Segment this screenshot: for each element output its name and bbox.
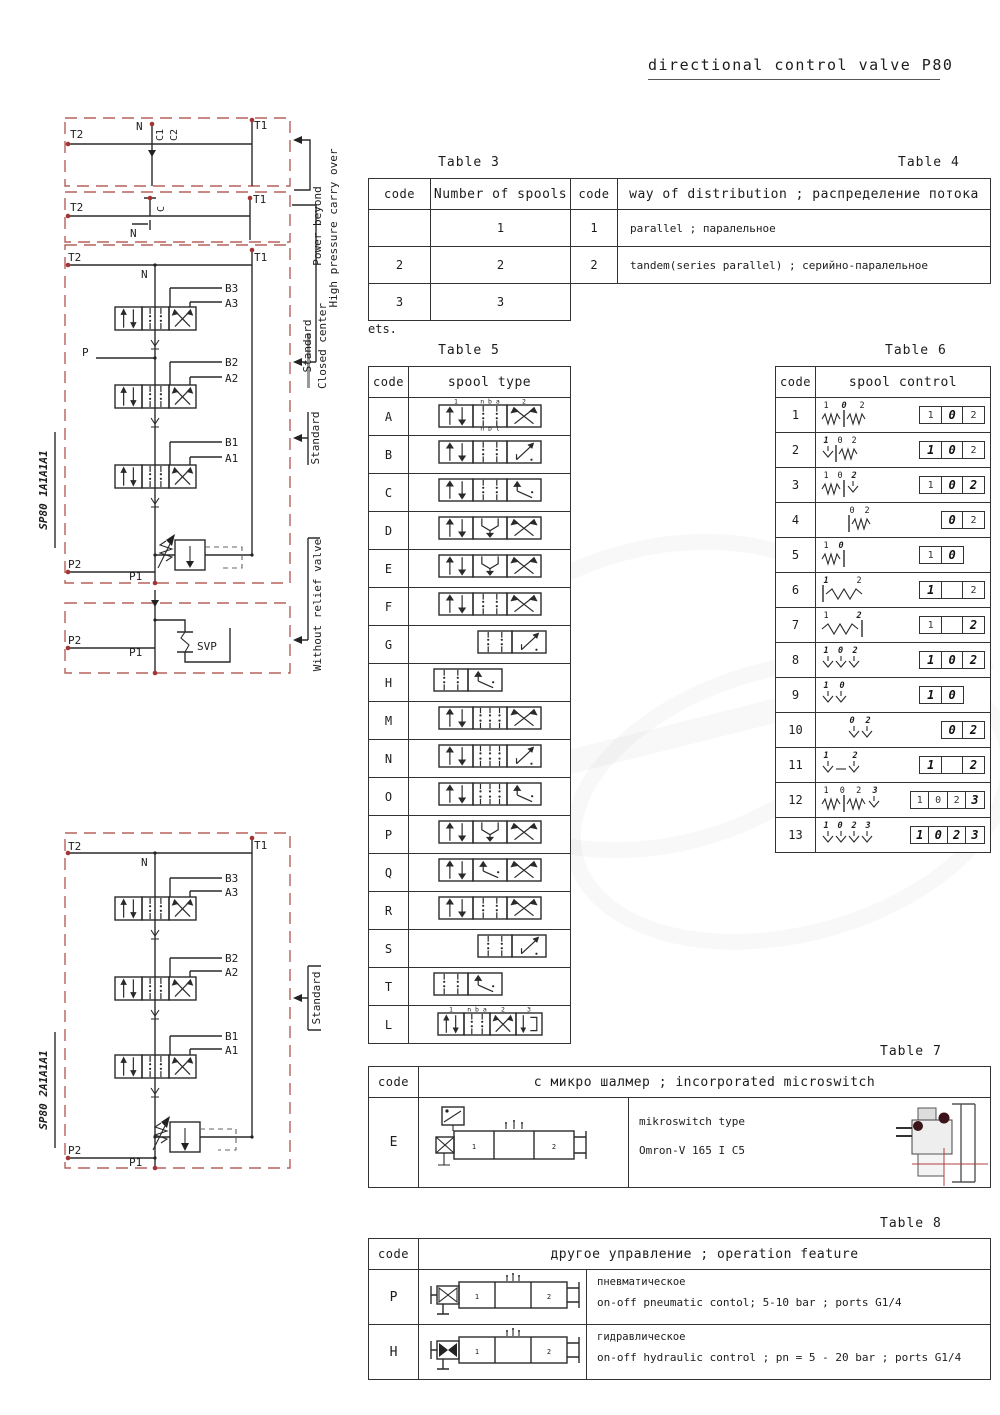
- svg-text:1: 1: [449, 1006, 453, 1014]
- position-boxes: 12: [921, 756, 985, 774]
- spool-type-row: T: [369, 968, 571, 1006]
- port-label: T2: [70, 201, 83, 214]
- spool-type-row: H: [369, 664, 571, 702]
- svg-text:Power beyond: Power beyond: [311, 186, 324, 265]
- code-cell: H: [369, 1325, 419, 1380]
- position-boxes: 10: [921, 686, 985, 704]
- description-cell: tandem(series parallel) ; серийно-парале…: [618, 247, 991, 284]
- svg-text:3: 3: [864, 821, 870, 831]
- control-symbol: 1212: [816, 573, 991, 608]
- table-row: 2 2: [369, 247, 571, 284]
- port-label: P: [82, 346, 89, 359]
- port-label: C: [156, 206, 167, 212]
- spool-code: A: [369, 398, 409, 436]
- svg-text:0: 0: [838, 541, 843, 551]
- table-row: H 1 2: [369, 1325, 991, 1380]
- spool-code: D: [369, 512, 409, 550]
- microswitch-type-label: mikroswitch type: [639, 1108, 848, 1137]
- control-code: 11: [776, 748, 816, 783]
- code-cell: 1: [571, 210, 618, 247]
- table6-header-code: code: [776, 367, 816, 398]
- table8-header-code: code: [369, 1239, 419, 1270]
- position-boxes: 102: [921, 441, 985, 459]
- spool-code: R: [369, 892, 409, 930]
- spool-control-row: 91010: [776, 678, 991, 713]
- svg-text:3: 3: [527, 1006, 531, 1014]
- svg-text:2: 2: [546, 1348, 550, 1356]
- spool-type-row: Q: [369, 854, 571, 892]
- port-label: A1: [225, 452, 238, 465]
- spool-code: H: [369, 664, 409, 702]
- port-label: P1: [129, 646, 142, 659]
- spool-type-row: F: [369, 588, 571, 626]
- spool-control-row: 40202: [776, 503, 991, 538]
- control-symbol: 0202: [816, 713, 991, 748]
- code-cell: 2: [369, 247, 431, 284]
- port-label: T1: [254, 839, 267, 852]
- port-label: T1: [253, 193, 266, 206]
- operation-en: on-off pneumatic contol; 5-10 bar ; port…: [597, 1293, 990, 1314]
- table3-header-code: code: [369, 179, 431, 210]
- code-cell: 2: [571, 247, 618, 284]
- table8-header-title: другое управление ; operation feature: [419, 1239, 991, 1270]
- table4-way-of-distribution: code way of distribution ; распределение…: [570, 178, 991, 284]
- spool-control-row: 8102102: [776, 643, 991, 678]
- port-label: T2: [68, 840, 81, 853]
- spool-symbol: [409, 930, 571, 968]
- pneumatic-control-icon: 1 2: [423, 1270, 583, 1320]
- position-boxes: 12: [921, 616, 985, 634]
- spool-type-row: P: [369, 816, 571, 854]
- port-label: T1: [254, 251, 267, 264]
- position-boxes: 02: [921, 721, 985, 739]
- control-code: 5: [776, 538, 816, 573]
- table5-header-type: spool type: [409, 367, 571, 398]
- spool-code: E: [369, 550, 409, 588]
- spool-symbol: [409, 816, 571, 854]
- control-symbol: 1010: [816, 538, 991, 573]
- spool-symbol: [409, 740, 571, 778]
- port-label: N: [141, 856, 148, 869]
- svg-text:Standard: Standard: [309, 412, 322, 465]
- spool-code: L: [369, 1006, 409, 1044]
- spool-code: G: [369, 626, 409, 664]
- spool-control-row: 71212: [776, 608, 991, 643]
- microswitch-valve-diagram: 1 2: [419, 1098, 629, 1188]
- table3-header-spools: Number of spools: [431, 179, 571, 210]
- svg-text:Without relief valve: Without relief valve: [311, 539, 324, 671]
- svg-text:1: 1: [823, 541, 828, 551]
- spool-symbol: [409, 474, 571, 512]
- svg-text:2: 2: [522, 398, 526, 406]
- svg-text:2: 2: [859, 401, 864, 411]
- port-label: N: [141, 268, 148, 281]
- port-label: B1: [225, 436, 238, 449]
- control-symbol: 102102: [816, 643, 991, 678]
- table8-label: Table 8: [880, 1216, 942, 1231]
- table7-label: Table 7: [880, 1044, 942, 1059]
- hydraulic-schematic: T2 N C1 C2 T1 T2 C N T1: [20, 100, 370, 1190]
- port-label: A2: [225, 372, 238, 385]
- control-symbol: 102102: [816, 398, 991, 433]
- svg-text:2: 2: [546, 1293, 550, 1301]
- svg-text:Closed center: Closed center: [316, 303, 329, 389]
- table-row: 3 3: [369, 284, 571, 321]
- spool-code: B: [369, 436, 409, 474]
- table4-label: Table 4: [898, 155, 960, 170]
- svg-text:1: 1: [823, 576, 828, 586]
- table7-microswitch: code с микро шалмер ; incorporated micro…: [368, 1066, 991, 1188]
- hydraulic-control-icon: 1 2: [423, 1325, 583, 1375]
- pneumatic-valve-diagram: 1 2: [419, 1270, 587, 1325]
- operation-ru: пневматическое: [597, 1273, 990, 1293]
- circuit-stack2: T2 N T1 B3 A3 B2 A2 B1 A1 P2 P1: [65, 833, 290, 1170]
- svg-text:1: 1: [823, 646, 828, 656]
- control-code: 1: [776, 398, 816, 433]
- spool-symbol: [409, 702, 571, 740]
- svg-text:0: 0: [841, 401, 846, 411]
- spool-code: C: [369, 474, 409, 512]
- control-code: 12: [776, 783, 816, 818]
- code-cell: E: [369, 1098, 419, 1188]
- table4-header-way: way of distribution ; распределение пото…: [618, 179, 991, 210]
- svg-text:2: 2: [851, 751, 857, 761]
- spool-symbol: [409, 588, 571, 626]
- control-code: 9: [776, 678, 816, 713]
- table5-spool-type: code spool type A1n b a2n p tBCDEFGHMNOP…: [368, 366, 571, 1044]
- port-label: P1: [129, 570, 142, 583]
- svg-text:2: 2: [856, 576, 861, 586]
- svg-text:2: 2: [855, 611, 861, 621]
- svg-text:1: 1: [474, 1348, 478, 1356]
- table-row: P 1 2: [369, 1270, 991, 1325]
- svg-text:1: 1: [823, 681, 828, 691]
- spool-symbol: [409, 854, 571, 892]
- svg-text:2: 2: [851, 436, 856, 446]
- spool-type-row: B: [369, 436, 571, 474]
- control-symbol: 10231023: [816, 783, 991, 818]
- valve-with-microswitch-icon: 1 2: [424, 1101, 624, 1181]
- port-label: B2: [225, 356, 238, 369]
- svg-text:3: 3: [871, 786, 877, 796]
- microswitch-info-cell: mikroswitch type Omron-V 165 I C5: [629, 1098, 991, 1188]
- svp-label: SVP: [197, 640, 217, 653]
- svg-text:1: 1: [823, 821, 828, 831]
- spool-symbol: [409, 626, 571, 664]
- spool-type-row: C: [369, 474, 571, 512]
- model-label: SP80 2A1A1A1: [37, 1050, 50, 1129]
- svg-text:0: 0: [837, 436, 842, 446]
- spool-control-row: 61212: [776, 573, 991, 608]
- control-symbol: 0202: [816, 503, 991, 538]
- code-cell: [369, 210, 431, 247]
- port-label: T1: [254, 119, 267, 132]
- svg-text:Standard: Standard: [310, 972, 323, 1025]
- control-symbol: 1010: [816, 678, 991, 713]
- microswitch-model: Omron-V 165 I C5: [639, 1137, 848, 1166]
- svg-text:2: 2: [850, 821, 856, 831]
- spool-symbol: [409, 436, 571, 474]
- operation-description: пневматическое on-off pneumatic contol; …: [587, 1270, 991, 1325]
- description-cell: parallel ; паралельное: [618, 210, 991, 247]
- position-boxes: 102: [921, 406, 985, 424]
- value-cell: 3: [431, 284, 571, 321]
- svg-text:1: 1: [454, 398, 458, 406]
- position-boxes: 10: [921, 546, 985, 564]
- spool-control-row: 3102102: [776, 468, 991, 503]
- spool-control-row: 1310231023: [776, 818, 991, 853]
- svg-text:0: 0: [849, 716, 854, 726]
- table3-number-of-spools: code Number of spools 1 2 2 3 3: [368, 178, 571, 321]
- spool-type-row: O: [369, 778, 571, 816]
- spool-type-row: N: [369, 740, 571, 778]
- svg-text:2: 2: [551, 1143, 555, 1151]
- port-label: B2: [225, 952, 238, 965]
- table6-header-control: spool control: [816, 367, 991, 398]
- spool-type-row: G: [369, 626, 571, 664]
- control-code: 2: [776, 433, 816, 468]
- table8-operation-feature: code другое управление ; operation featu…: [368, 1238, 991, 1380]
- svg-text:2: 2: [851, 646, 857, 656]
- svg-text:2: 2: [864, 506, 869, 516]
- spool-symbol: 1n b a23: [409, 1006, 571, 1044]
- spool-control-row: 111212: [776, 748, 991, 783]
- position-boxes: 1023: [911, 826, 985, 844]
- port-label: P2: [68, 634, 81, 647]
- port-label: A1: [225, 1044, 238, 1057]
- control-symbol: 1212: [816, 608, 991, 643]
- position-boxes: 1023: [911, 791, 985, 809]
- port-label: C1: [155, 129, 166, 141]
- table6-body: 1102102210210231021024020251010612127121…: [776, 398, 991, 853]
- port-label: B3: [225, 282, 238, 295]
- svg-text:0: 0: [837, 821, 842, 831]
- svg-text:0: 0: [838, 646, 843, 656]
- spool-symbol: 1n b a2n p t: [409, 398, 571, 436]
- spool-code: Q: [369, 854, 409, 892]
- operation-description: гидравлическое on-off hydraulic control …: [587, 1325, 991, 1380]
- annotation-standard: Standard: [293, 412, 322, 465]
- svg-text:1: 1: [823, 611, 828, 621]
- port-label: A2: [225, 966, 238, 979]
- spool-control-row: 51010: [776, 538, 991, 573]
- svg-text:1: 1: [823, 751, 828, 761]
- svg-text:Standard: Standard: [301, 320, 314, 373]
- table7-header-code: code: [369, 1067, 419, 1098]
- circuit-closed-center: T2 C N T1: [65, 192, 290, 242]
- spool-type-row: R: [369, 892, 571, 930]
- svg-text:2: 2: [501, 1006, 505, 1014]
- control-symbol: 1212: [816, 748, 991, 783]
- control-code: 4: [776, 503, 816, 538]
- spool-type-row: A1n b a2n p t: [369, 398, 571, 436]
- circuit-stack1: T2 N T1 B3 A3 B2 A2 B1 A1 P P2 P1: [65, 245, 290, 585]
- spool-type-row: M: [369, 702, 571, 740]
- control-symbol: 102102: [816, 468, 991, 503]
- svg-text:1: 1: [823, 786, 828, 796]
- table5-header-code: code: [369, 367, 409, 398]
- model-label: SP80 1A1A1A1: [37, 450, 50, 529]
- catalog-page: directional control valve P80 T2 N C1 C2…: [0, 0, 1000, 1415]
- port-label: P2: [68, 558, 81, 571]
- spool-control-row: 1210231023: [776, 783, 991, 818]
- value-cell: 1: [431, 210, 571, 247]
- svg-text:0: 0: [849, 506, 854, 516]
- svg-text:0: 0: [840, 786, 845, 796]
- svg-text:2: 2: [850, 471, 856, 481]
- annotation-without-relief: Without relief valve: [293, 538, 324, 671]
- table6-label: Table 6: [885, 343, 947, 358]
- table-row: 2 tandem(series parallel) ; серийно-пара…: [571, 247, 991, 284]
- spool-control-row: 2102102: [776, 433, 991, 468]
- spool-symbol: [409, 778, 571, 816]
- spool-code: N: [369, 740, 409, 778]
- control-code: 8: [776, 643, 816, 678]
- port-label: B1: [225, 1030, 238, 1043]
- code-cell: 3: [369, 284, 431, 321]
- svg-text:High pressure carry over: High pressure carry over: [327, 148, 340, 307]
- spool-code: F: [369, 588, 409, 626]
- port-label: B3: [225, 872, 238, 885]
- svg-text:0: 0: [839, 681, 844, 691]
- circuit-without-relief: SVP P2 P1: [65, 590, 290, 675]
- port-label: N: [136, 120, 143, 133]
- spool-code: P: [369, 816, 409, 854]
- spool-control-row: 100202: [776, 713, 991, 748]
- spool-control-row: 1102102: [776, 398, 991, 433]
- spool-code: T: [369, 968, 409, 1006]
- port-label: P1: [129, 1156, 142, 1169]
- table3-label: Table 3: [368, 155, 570, 170]
- page-title: directional control valve P80: [648, 56, 940, 80]
- spool-code: S: [369, 930, 409, 968]
- spool-type-row: S: [369, 930, 571, 968]
- annotation-power-beyond: Power beyond High pressure carry over St…: [292, 136, 340, 389]
- spool-type-row: E: [369, 550, 571, 588]
- position-boxes: 102: [921, 476, 985, 494]
- value-cell: 2: [431, 247, 571, 284]
- spool-symbol: [409, 512, 571, 550]
- control-code: 13: [776, 818, 816, 853]
- control-symbol: 10231023: [816, 818, 991, 853]
- svg-text:1: 1: [823, 436, 828, 446]
- hydraulic-valve-diagram: 1 2: [419, 1325, 587, 1380]
- table5-label: Table 5: [368, 343, 570, 358]
- operation-en: on-off hydraulic control ; pn = 5 - 20 b…: [597, 1348, 990, 1369]
- control-code: 3: [776, 468, 816, 503]
- circuit-power-beyond: T2 N C1 C2 T1: [65, 118, 290, 186]
- svg-text:1: 1: [471, 1143, 475, 1151]
- svg-text:1: 1: [823, 401, 828, 411]
- table7-header-title: с микро шалмер ; incorporated microswitc…: [419, 1067, 991, 1098]
- control-code: 7: [776, 608, 816, 643]
- port-label: T2: [68, 251, 81, 264]
- spool-code: O: [369, 778, 409, 816]
- svg-text:n b a: n b a: [467, 1006, 487, 1014]
- position-boxes: 02: [921, 511, 985, 529]
- port-label: T2: [70, 128, 83, 141]
- microswitch-photo: [848, 1098, 990, 1186]
- port-label: A3: [225, 886, 238, 899]
- svg-text:2: 2: [856, 786, 861, 796]
- svg-text:2: 2: [864, 716, 870, 726]
- svg-text:0: 0: [837, 471, 842, 481]
- svg-text:1: 1: [474, 1293, 478, 1301]
- svg-text:n p t: n p t: [480, 425, 500, 432]
- table4-header-code: code: [571, 179, 618, 210]
- code-cell: P: [369, 1270, 419, 1325]
- spool-symbol: [409, 664, 571, 702]
- etc-note: ets.: [368, 322, 397, 336]
- spool-code: M: [369, 702, 409, 740]
- table6-spool-control: code spool control 110210221021023102102…: [775, 366, 991, 853]
- control-symbol: 102102: [816, 433, 991, 468]
- control-code: 6: [776, 573, 816, 608]
- operation-ru: гидравлическое: [597, 1328, 990, 1348]
- port-label: P2: [68, 1144, 81, 1157]
- annotation-standard-2: Standard: [293, 966, 323, 1030]
- svg-text:1: 1: [823, 471, 828, 481]
- position-boxes: 102: [921, 651, 985, 669]
- spool-type-row: D: [369, 512, 571, 550]
- table-row: 1 parallel ; паралельное: [571, 210, 991, 247]
- spool-symbol: [409, 892, 571, 930]
- port-label: C2: [169, 129, 180, 141]
- port-label: N: [130, 227, 137, 240]
- spool-type-row: L1n b a23: [369, 1006, 571, 1044]
- spool-symbol: [409, 550, 571, 588]
- port-label: A3: [225, 297, 238, 310]
- svg-text:n b a: n b a: [480, 398, 500, 406]
- table-row: 1: [369, 210, 571, 247]
- control-code: 10: [776, 713, 816, 748]
- spool-symbol: [409, 968, 571, 1006]
- table-row: E 1 2: [369, 1098, 991, 1188]
- table5-body: A1n b a2n p tBCDEFGHMNOPQRSTL1n b a23: [369, 398, 571, 1044]
- position-boxes: 12: [921, 581, 985, 599]
